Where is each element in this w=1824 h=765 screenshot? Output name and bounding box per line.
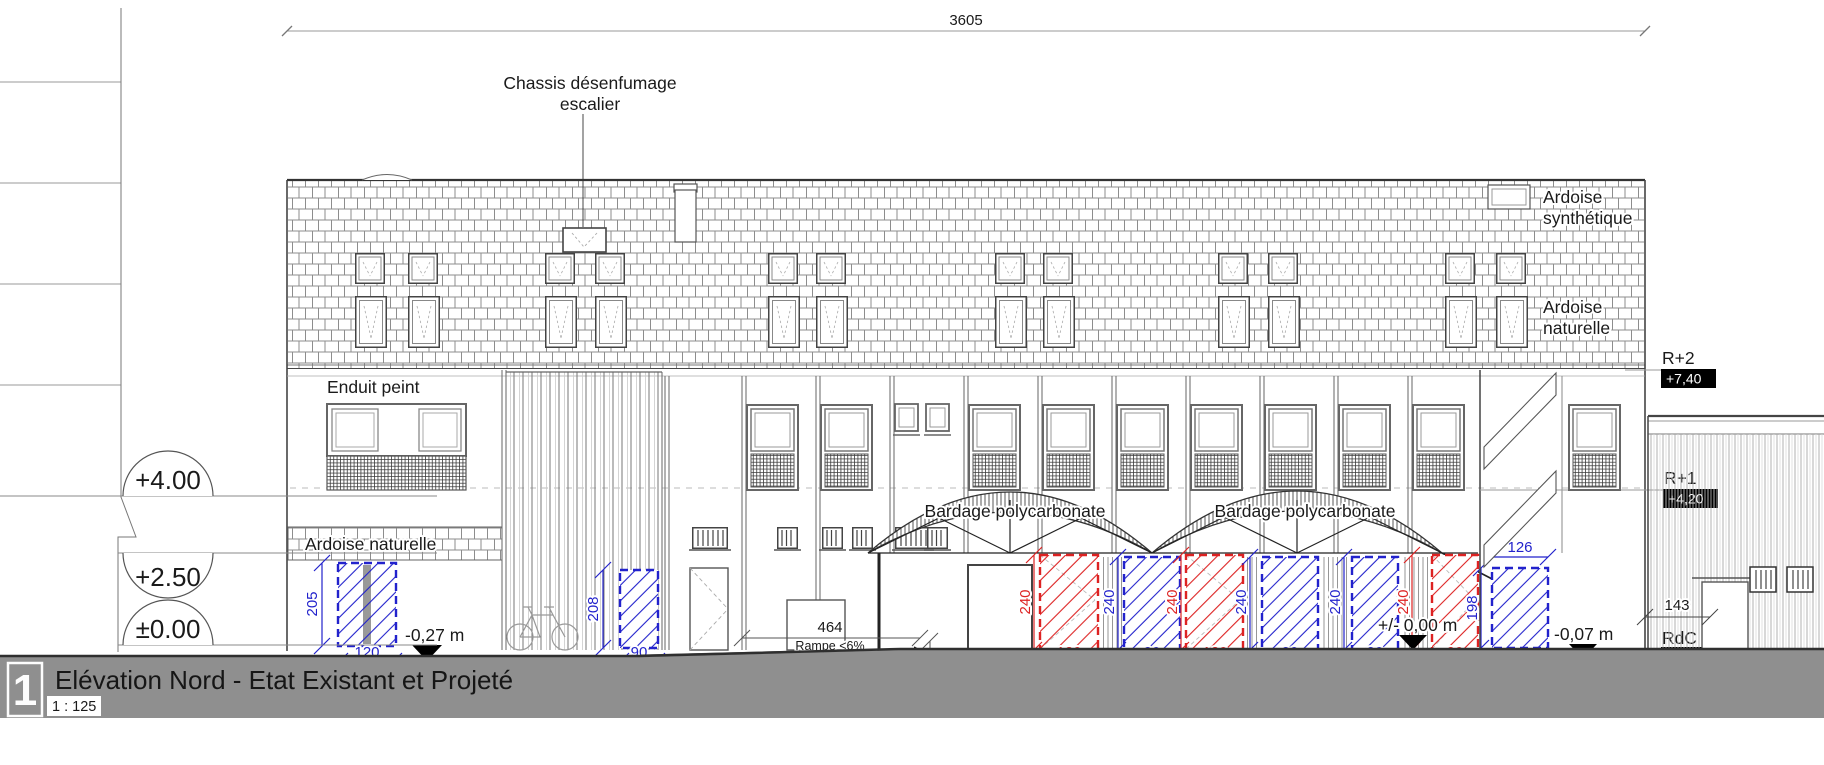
neighbor-building: 143 [1637, 416, 1824, 650]
drawing-title: Elévation Nord - Etat Existant et Projet… [55, 665, 513, 695]
dim-width: 126 [1507, 539, 1532, 556]
level-right-label: -0,07 m [1554, 624, 1613, 644]
smoke-vent-window [563, 228, 606, 252]
roof-vent-bump [362, 175, 412, 181]
neighbor-door [1692, 578, 1756, 650]
left-reference-lines [0, 8, 136, 652]
large-window [327, 404, 466, 490]
ardoise-naturelle-left-label: Ardoise naturelle [305, 534, 436, 554]
sheet-number: 1 [13, 666, 37, 715]
dim-total-label: 3605 [949, 12, 982, 29]
ardoise-naturelle-right-2: naturelle [1543, 318, 1610, 338]
level-left-label: -0,27 m [405, 625, 464, 645]
dim-height: 240 [1327, 589, 1344, 614]
slate-band: Ardoise naturelle [288, 527, 502, 560]
level-400: +4.00 [135, 465, 201, 495]
storey-r2-name: R+2 [1662, 348, 1695, 368]
dim-height: 240 [1395, 589, 1412, 614]
storey-r2-value: +7,40 [1666, 371, 1702, 387]
overall-dimension: 3605 [282, 12, 1650, 36]
enduit-peint-label: Enduit peint [327, 377, 420, 397]
neighbor-dim-label: 143 [1664, 597, 1689, 614]
synthetic-slate-panel [1488, 185, 1530, 209]
ardoise-synthetique-2: synthétique [1543, 208, 1633, 228]
annotation-line2: escalier [560, 94, 620, 114]
dim-height: 208 [585, 596, 602, 621]
elevation-drawing: 3605 Chassis désenfumage escalier [0, 0, 1824, 765]
dim-height: 198 [1464, 595, 1481, 620]
level-250: +2.50 [135, 562, 201, 592]
annotation-line1: Chassis désenfumage [503, 73, 676, 93]
level-000: ±0.00 [136, 614, 201, 644]
bardage-label-1: Bardage polycarbonate [925, 501, 1106, 521]
dim-height: 240 [1101, 589, 1118, 614]
dim-height: 240 [1017, 589, 1034, 614]
drawing-scale: 1 : 125 [52, 699, 96, 715]
roof [287, 175, 1645, 370]
level-center-label: +/- 0,00 m [1378, 615, 1457, 635]
dim-height: 240 [1233, 589, 1250, 614]
ramp-width-dim: 464 [817, 619, 842, 636]
chimney [674, 184, 697, 242]
dim-height: 240 [1164, 589, 1181, 614]
swing-door [690, 568, 728, 650]
dim-height: 205 [304, 591, 321, 616]
bardage-label-2: Bardage polycarbonate [1215, 501, 1396, 521]
drawing-sheet: 3605 Chassis désenfumage escalier [0, 0, 1824, 765]
ardoise-synthetique-1: Ardoise [1543, 187, 1602, 207]
ardoise-naturelle-right-1: Ardoise [1543, 297, 1602, 317]
